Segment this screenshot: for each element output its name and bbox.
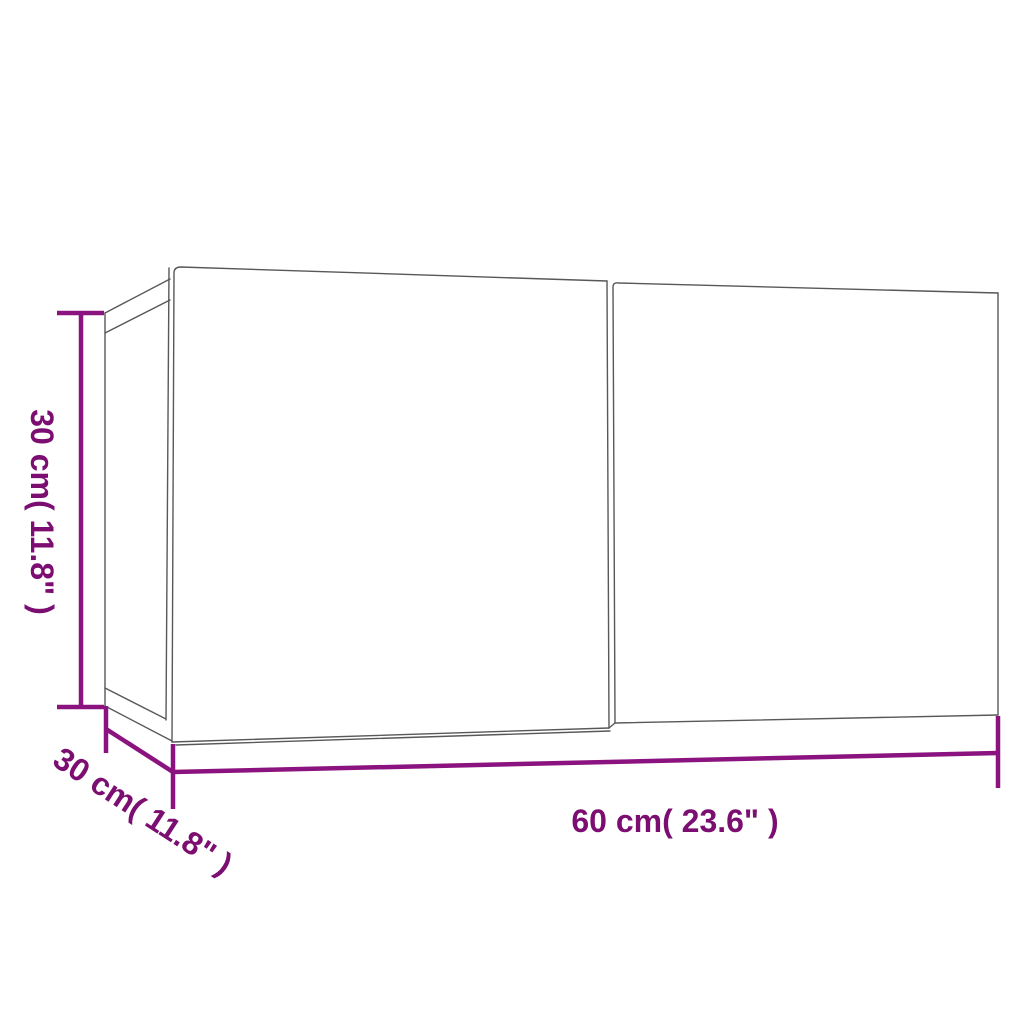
- cabinet-bottom-carcass-edge: [176, 731, 610, 745]
- width-dimension-line: [173, 753, 998, 772]
- diagram-svg: 30 cm( 11.8" ) 30 cm( 11.8" ) 60 cm( 23.…: [0, 0, 1024, 1024]
- cabinet-side-bottom-inner-edge: [105, 688, 166, 719]
- cabinet-side-top-outer-edge: [105, 279, 170, 313]
- cabinet-side-top-inner-edge: [105, 300, 170, 333]
- depth-dimension-label: 30 cm( 11.8" ): [47, 740, 239, 882]
- left-door-bottom-edge: [172, 728, 609, 742]
- right-door-bottom-edge: [615, 715, 998, 723]
- dimension-diagram: 30 cm( 11.8" ) 30 cm( 11.8" ) 60 cm( 23.…: [0, 0, 1024, 1024]
- left-door-outline: [172, 267, 607, 742]
- height-dimension: 30 cm( 11.8" ): [24, 313, 104, 707]
- door-gap-step: [609, 723, 615, 728]
- cabinet-drawing: [105, 267, 998, 745]
- height-dimension-label: 30 cm( 11.8" ): [24, 409, 60, 615]
- width-dimension-label: 60 cm( 23.6" ): [571, 803, 778, 839]
- depth-dimension-line: [106, 729, 173, 772]
- depth-dimension: 30 cm( 11.8" ): [47, 706, 239, 882]
- right-door-outline: [613, 283, 998, 723]
- width-dimension: 60 cm( 23.6" ): [173, 716, 998, 839]
- left-door-right-edge: [607, 281, 609, 728]
- cabinet-front-left-carcass-edge: [166, 268, 169, 720]
